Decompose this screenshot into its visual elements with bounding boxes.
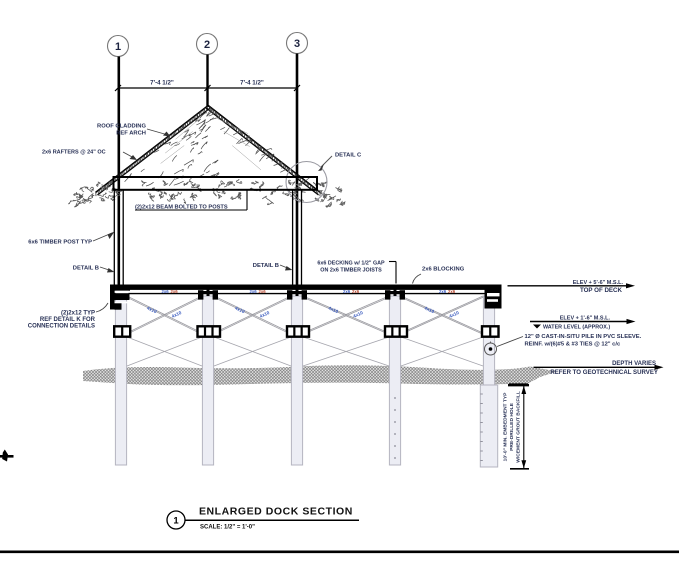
svg-text:REFER TO GEOTECHNICAL SURVEY: REFER TO GEOTECHNICAL SURVEY <box>550 369 658 376</box>
svg-text:DETAIL B: DETAIL B <box>73 266 99 272</box>
svg-text:DETAIL C: DETAIL C <box>335 153 362 159</box>
svg-text:ENLARGED DOCK SECTION: ENLARGED DOCK SECTION <box>199 506 353 518</box>
svg-text:REF DETAIL K FOR: REF DETAIL K FOR <box>40 317 96 323</box>
svg-text:2x6 BLOCKING: 2x6 BLOCKING <box>422 267 465 273</box>
svg-text:TOP OF DECK: TOP OF DECK <box>580 287 623 294</box>
svg-text:6x6 DECKING w/ 1/2" GAP: 6x6 DECKING w/ 1/2" GAP <box>317 261 385 267</box>
svg-text:DETAIL B: DETAIL B <box>253 263 279 269</box>
svg-text:2x6: 2x6 <box>439 289 447 294</box>
svg-text:REF ARCH: REF ARCH <box>116 131 146 137</box>
svg-text:(2)2x12 TYP: (2)2x12 TYP <box>61 311 95 317</box>
svg-text:ON 2x6 TIMBER JOISTS: ON 2x6 TIMBER JOISTS <box>320 268 382 274</box>
svg-text:ROOF CLADDING: ROOF CLADDING <box>97 124 146 130</box>
svg-text:WATER LEVEL (APPROX.): WATER LEVEL (APPROX.) <box>543 325 610 331</box>
svg-text:10'-0" MIN. EMBEDMENT TYP: 10'-0" MIN. EMBEDMENT TYP <box>503 392 509 461</box>
svg-text:ELEV + 1'-6" M.S.L.: ELEV + 1'-6" M.S.L. <box>560 316 611 322</box>
svg-text:2x6: 2x6 <box>343 289 351 294</box>
svg-text:2x6 RAFTERS @ 24" OC: 2x6 RAFTERS @ 24" OC <box>42 150 106 156</box>
svg-text:1: 1 <box>173 516 179 527</box>
svg-text:2x6: 2x6 <box>250 289 258 294</box>
svg-text:2x6: 2x6 <box>171 289 179 294</box>
svg-text:2x6: 2x6 <box>448 289 456 294</box>
svg-text:3: 3 <box>294 38 300 50</box>
svg-text:2x6: 2x6 <box>352 289 360 294</box>
svg-text:1: 1 <box>115 41 121 53</box>
svg-text:7'-4 1/2": 7'-4 1/2" <box>150 80 174 87</box>
svg-text:ELEV + 5'-6" M.S.L.: ELEV + 5'-6" M.S.L. <box>573 280 624 286</box>
svg-text:6x6 TIMBER POST TYP: 6x6 TIMBER POST TYP <box>28 240 92 246</box>
svg-text:7'-4 1/2": 7'-4 1/2" <box>240 80 264 87</box>
svg-text:DEPTH VARIES: DEPTH VARIES <box>612 361 656 367</box>
svg-text:2x6: 2x6 <box>259 289 267 294</box>
svg-text:W/CEMENT GROUT BACKFILL: W/CEMENT GROUT BACKFILL <box>516 391 522 462</box>
svg-text:CONNECTION DETAILS: CONNECTION DETAILS <box>28 324 95 330</box>
svg-text:2: 2 <box>204 39 210 51</box>
svg-text:PRE-DRILLED HOLE: PRE-DRILLED HOLE <box>509 402 515 451</box>
svg-text:12" Ø CAST-IN-SITU PILE IN PVC: 12" Ø CAST-IN-SITU PILE IN PVC SLEEVE. <box>525 334 642 340</box>
svg-text:SCALE: 1/2" = 1'-0": SCALE: 1/2" = 1'-0" <box>200 525 255 531</box>
svg-text:REINF. w/(6)#5 & #3 TIES @ 12": REINF. w/(6)#5 & #3 TIES @ 12" c/c <box>525 341 621 347</box>
svg-text:2x6: 2x6 <box>162 289 170 294</box>
